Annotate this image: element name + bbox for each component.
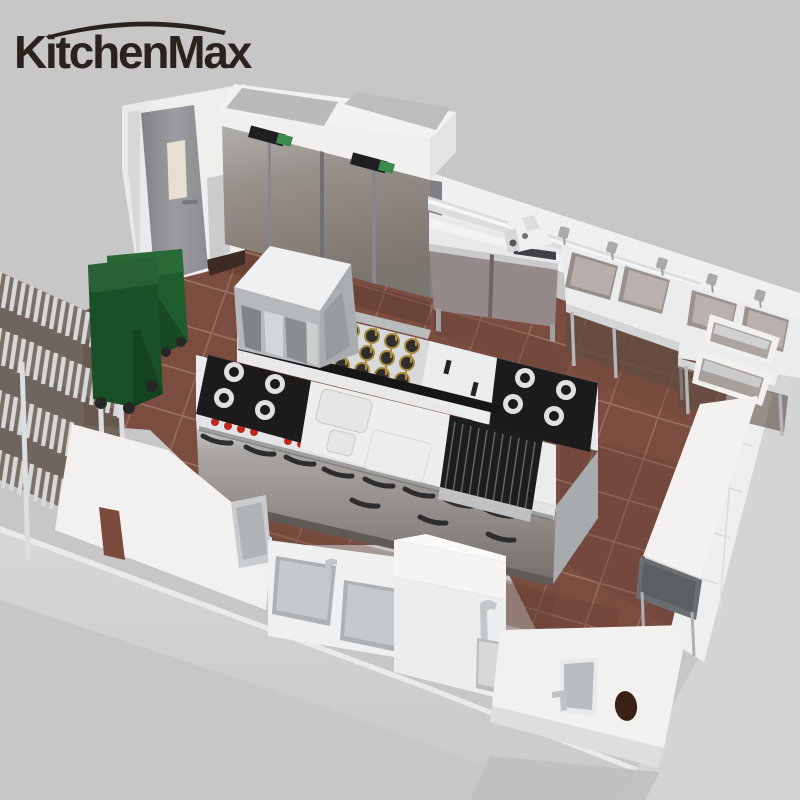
svg-text:KitchenMax: KitchenMax (14, 26, 253, 78)
